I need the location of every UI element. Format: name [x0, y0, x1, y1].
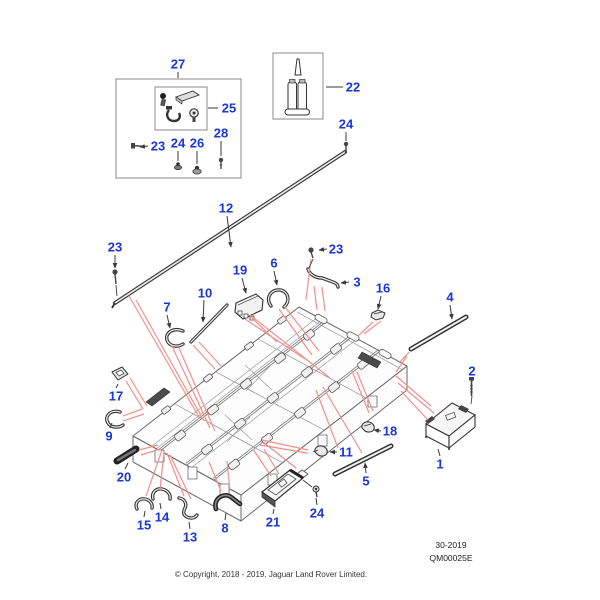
callout-24: 24 [310, 506, 325, 521]
callout-leader-17 [116, 384, 118, 388]
parts-diagram-page: 2725232426282224122323361910716421181151… [0, 0, 600, 600]
callout-23: 23 [108, 240, 122, 255]
callout-16: 16 [376, 281, 390, 296]
callout-18: 18 [383, 424, 397, 439]
callout-21: 21 [266, 515, 280, 530]
callout-23: 23 [151, 139, 165, 154]
callout-leader-21 [273, 509, 274, 514]
part-1-battery-module [425, 403, 475, 450]
callout-leader-6 [274, 271, 277, 285]
part-9-bracket [107, 411, 123, 427]
callout-leader-16 [378, 296, 381, 309]
part-24-screw-bottom [313, 486, 319, 497]
callout-11: 11 [339, 445, 353, 460]
callout-leader-23 [319, 249, 327, 250]
callout-leader-5 [365, 463, 366, 473]
sealant-kit-box [273, 53, 323, 119]
part-17-clip [112, 367, 128, 380]
callout-14: 14 [155, 510, 170, 525]
assembly-line [193, 345, 215, 369]
callout-leader-14 [160, 503, 161, 509]
callout-leader-12 [227, 216, 231, 247]
assembly-line [398, 383, 434, 413]
part-13-bracket [179, 498, 197, 518]
connector-line [303, 480, 312, 487]
callout-26: 26 [190, 136, 204, 151]
part-7-hook-clip [167, 330, 183, 346]
callout-leader-7 [167, 315, 170, 328]
part-15-hook [136, 499, 152, 509]
callout-22: 22 [346, 80, 360, 95]
callout-leader-20 [125, 463, 128, 469]
callout-leader-13 [189, 522, 190, 529]
callout-6: 6 [270, 256, 277, 271]
assembly-line [322, 287, 325, 311]
callout-24: 24 [171, 136, 186, 151]
callout-leader-19 [242, 278, 246, 293]
callout-1: 1 [436, 457, 443, 472]
callout-leader-4 [450, 305, 452, 319]
part-24-screw-rail [344, 142, 348, 151]
assembly-line [136, 300, 204, 421]
part-23-screw-left [112, 269, 117, 284]
part-23-screw-right [308, 247, 313, 258]
callout-3: 3 [353, 275, 360, 290]
copyright-notice: © Copyright, 2018 - 2019. Jaguar Land Ro… [121, 570, 421, 579]
part-19-connector-cover [235, 294, 263, 320]
callout-24: 24 [339, 117, 354, 132]
part-18-clip [362, 422, 374, 432]
callout-leader-18 [374, 430, 381, 431]
part-14-hook [153, 489, 171, 499]
drawing-code: QM00025E [411, 553, 491, 563]
part-10-rod [191, 305, 227, 342]
callout-19: 19 [233, 263, 247, 278]
callout-leader-3 [341, 282, 349, 283]
connector-line [471, 396, 472, 404]
callout-4: 4 [446, 290, 454, 305]
callout-17: 17 [109, 389, 123, 404]
callout-leader-1 [438, 449, 440, 456]
callout-9: 9 [105, 429, 112, 444]
callout-20: 20 [117, 470, 131, 485]
callout-8: 8 [221, 521, 228, 536]
part-16-clip [371, 310, 385, 320]
callout-leader-8 [225, 513, 226, 520]
callout-leader-10 [203, 300, 204, 322]
part-3-bracket [308, 269, 338, 287]
diagram-canvas: 2725232426282224122323361910716421181151… [0, 0, 600, 600]
callout-12: 12 [219, 201, 233, 216]
assembly-line [199, 342, 221, 366]
sheet-code: 30-2019 [411, 540, 491, 550]
callout-leader-24 [316, 498, 317, 505]
callout-13: 13 [183, 530, 197, 545]
callout-23: 23 [329, 242, 343, 257]
callout-leader-15 [144, 511, 145, 517]
callout-28: 28 [214, 126, 228, 141]
connector-line [116, 285, 117, 296]
part-4-rail [411, 317, 466, 349]
callout-27: 27 [171, 57, 185, 72]
assembly-line [123, 409, 142, 416]
part-6-hook-clip [269, 290, 288, 307]
callout-25: 25 [222, 101, 236, 116]
callout-15: 15 [137, 518, 151, 533]
callout-10: 10 [198, 286, 212, 301]
callout-2: 2 [468, 364, 475, 379]
assembly-line [314, 286, 317, 310]
assembly-line [401, 391, 428, 420]
callout-7: 7 [163, 300, 170, 315]
callout-5: 5 [362, 474, 369, 489]
